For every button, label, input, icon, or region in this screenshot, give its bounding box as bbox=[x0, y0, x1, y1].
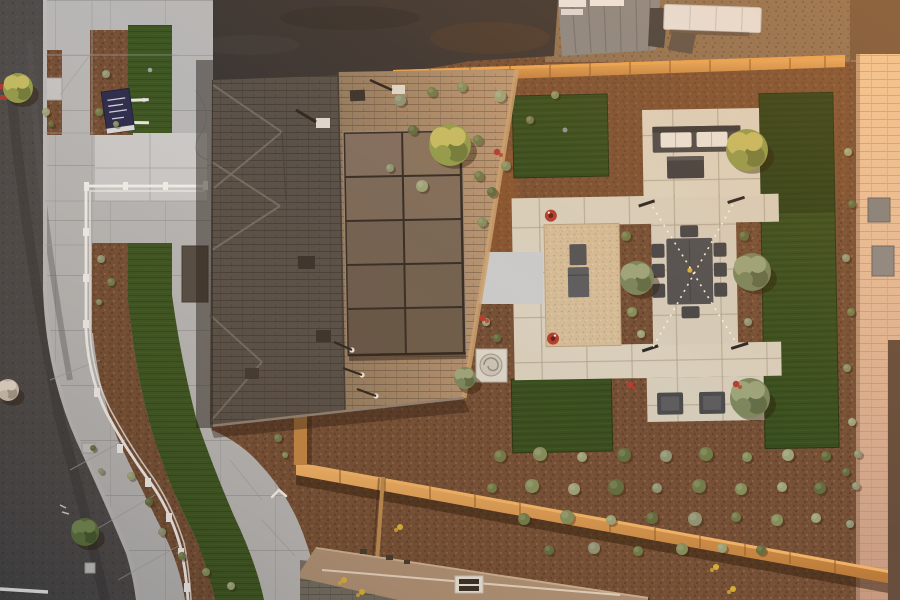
golden-hour-overlay bbox=[0, 0, 900, 600]
aerial-photo bbox=[0, 0, 900, 600]
aerial-photo-canvas bbox=[0, 0, 900, 600]
